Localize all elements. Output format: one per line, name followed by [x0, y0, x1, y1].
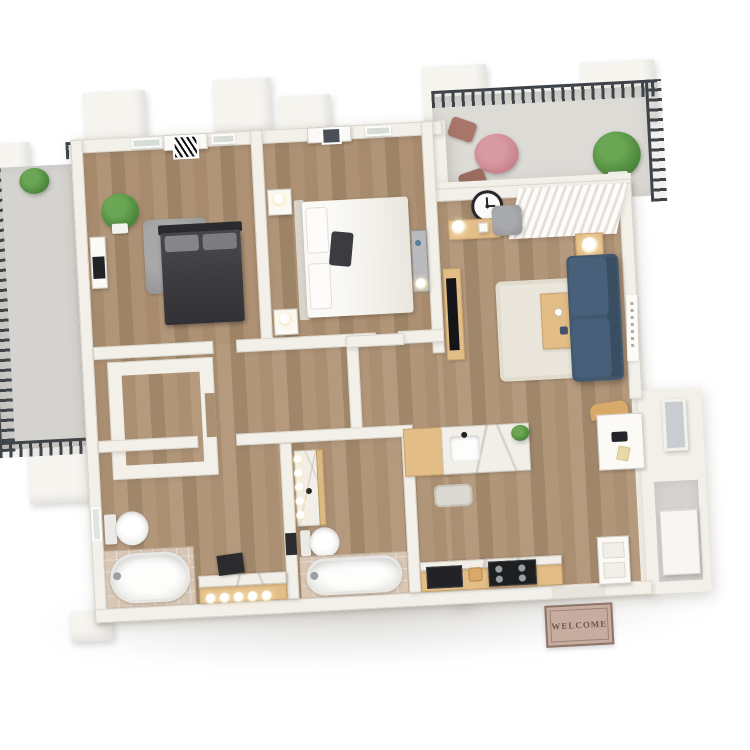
- vertical-blinds: [509, 183, 627, 239]
- bedroom1-plant-pot: [112, 223, 129, 234]
- wall-mirror: [662, 398, 689, 451]
- sofa-cushion: [571, 318, 612, 378]
- script-wall-art: [626, 295, 638, 361]
- bathroom2-tub: [305, 554, 403, 596]
- floor-east: [434, 191, 641, 590]
- welcome-doormat: WELCOME: [544, 602, 614, 648]
- zebra-art: [174, 136, 197, 157]
- bed-pillow: [164, 234, 199, 252]
- bread-box: [468, 567, 483, 582]
- armchair: [491, 205, 523, 237]
- sofa-cushion: [568, 256, 609, 316]
- microwave: [426, 565, 463, 589]
- vanity-mirror: [216, 553, 245, 576]
- bedroom2-bed: [294, 194, 416, 320]
- bed-pillow: [202, 232, 237, 250]
- island-sink: [449, 435, 480, 463]
- sofa: [566, 254, 625, 383]
- door-art: [323, 129, 340, 143]
- coffee-table-decor: [560, 326, 568, 334]
- bathroom1-window: [90, 507, 102, 541]
- bed-pillow: [305, 207, 329, 254]
- entry-door-panel: [603, 562, 626, 579]
- utility-appliance: [659, 508, 700, 576]
- vanity-mirror: [285, 533, 297, 556]
- doormat-text: WELCOME: [551, 619, 607, 632]
- pillar: [212, 77, 273, 136]
- bathroom1-tub: [109, 550, 192, 604]
- floorplan: WELCOME: [34, 79, 732, 673]
- kitchen-floor-mat: [434, 484, 473, 508]
- accent-pillow: [329, 231, 354, 267]
- bed-pillow: [308, 263, 332, 310]
- media-cabinet-screen: [92, 256, 105, 279]
- bedroom1-bed: [158, 221, 247, 325]
- bedroom1-window: [211, 133, 235, 144]
- gas-stove: [488, 559, 537, 586]
- bedroom1-window: [131, 137, 161, 149]
- laptop: [611, 431, 628, 442]
- entry-door-panel: [602, 542, 625, 559]
- bedroom2-south-wall: [398, 329, 445, 344]
- table-frame-decor: [478, 222, 489, 233]
- floorplan-stage: WELCOME: [0, 0, 750, 750]
- bedroom2-window: [365, 125, 391, 136]
- walkin-closet-floor: [122, 372, 205, 466]
